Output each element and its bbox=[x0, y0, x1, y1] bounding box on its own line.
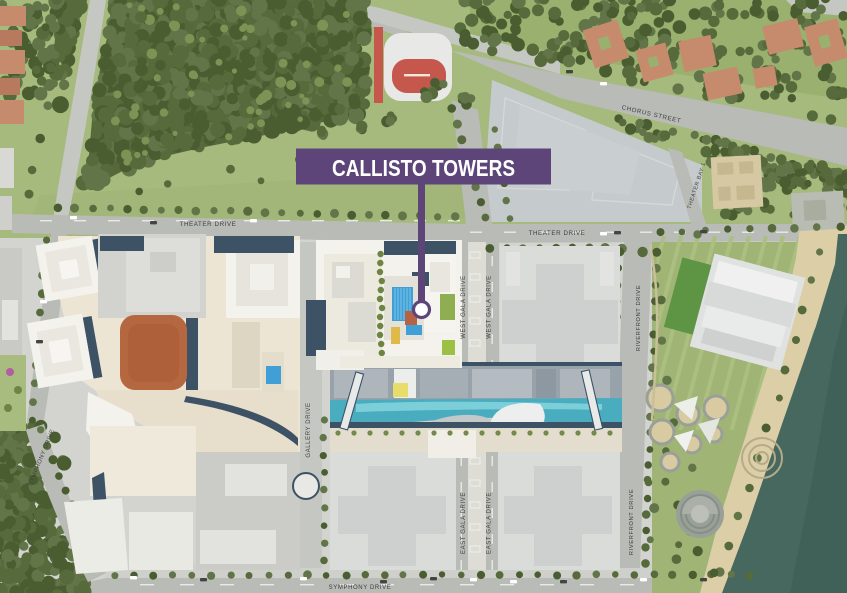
svg-text:SYMPHONY DRIVE: SYMPHONY DRIVE bbox=[329, 585, 392, 591]
svg-text:CALLISTO TOWERS: CALLISTO TOWERS bbox=[332, 155, 515, 181]
svg-text:EAST GALA DRIVE: EAST GALA DRIVE bbox=[461, 492, 467, 554]
svg-text:THEATER DRIVE: THEATER DRIVE bbox=[529, 230, 586, 237]
svg-text:GALLERY DRIVE: GALLERY DRIVE bbox=[306, 402, 312, 457]
svg-text:WEST GALA DRIVE: WEST GALA DRIVE bbox=[487, 275, 493, 339]
svg-text:WEST GALA DRIVE: WEST GALA DRIVE bbox=[461, 275, 467, 339]
svg-text:RIVERFRONT DRIVE: RIVERFRONT DRIVE bbox=[629, 489, 635, 556]
svg-text:THEATER DRIVE: THEATER DRIVE bbox=[180, 221, 237, 228]
svg-text:EAST GALA DRIVE: EAST GALA DRIVE bbox=[487, 492, 493, 554]
svg-text:RIVERFRONT DRIVE: RIVERFRONT DRIVE bbox=[636, 285, 642, 352]
